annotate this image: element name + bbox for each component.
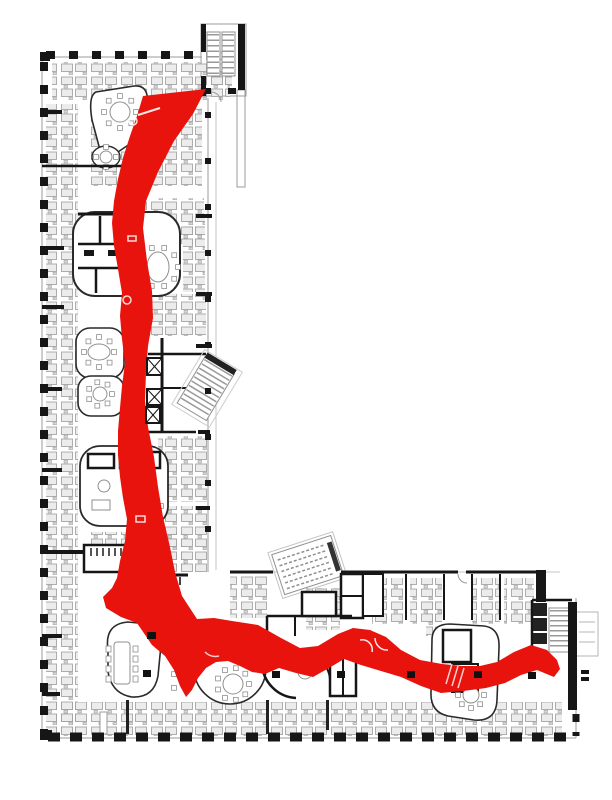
chair [482, 693, 487, 698]
chair [247, 682, 252, 687]
chair [149, 246, 154, 251]
band-wall-stub [126, 700, 129, 734]
chair [459, 702, 464, 707]
elevator-box [533, 603, 547, 616]
chair [216, 687, 221, 692]
chair [107, 339, 112, 344]
chair [107, 360, 112, 365]
chair [95, 403, 100, 408]
chair [112, 350, 117, 355]
tower-door-jamb [228, 88, 236, 94]
chair [172, 686, 177, 691]
desk-zone [150, 294, 206, 336]
chair [86, 339, 91, 344]
auditorium-body [272, 535, 344, 594]
chair [118, 126, 123, 131]
column-on-ribbon [474, 671, 482, 678]
round-table [110, 102, 130, 122]
chair [469, 706, 474, 711]
tower-wall-right [238, 24, 245, 90]
conference-table [114, 642, 130, 684]
chair [172, 253, 177, 258]
floor-plan-svg [0, 0, 612, 800]
right-appendage [576, 612, 598, 656]
elevator-box [533, 633, 547, 644]
chair [97, 365, 102, 370]
chair [233, 697, 238, 702]
chair [106, 121, 111, 126]
chair [106, 656, 111, 662]
column-on-ribbon [407, 671, 415, 678]
door-jamb-mark [581, 670, 589, 674]
corner-column [40, 730, 52, 740]
chair [86, 360, 91, 365]
chair [106, 646, 111, 652]
column-on-ribbon [528, 672, 536, 679]
chair [243, 692, 248, 697]
chair [106, 666, 111, 672]
desk-zone [183, 216, 205, 292]
band-wall-stub [266, 700, 269, 734]
chair [105, 382, 110, 387]
wall-stub [196, 214, 212, 218]
chair [176, 265, 181, 270]
wall-stub [196, 292, 212, 296]
chair [129, 98, 134, 103]
chair [102, 110, 107, 115]
door-jamb-mark [581, 677, 589, 681]
chair [87, 386, 92, 391]
tower-stair-flight [207, 32, 220, 76]
round-table [100, 151, 112, 163]
chair [106, 676, 111, 682]
small-room [302, 592, 336, 616]
chair [133, 646, 138, 652]
chair [456, 693, 461, 698]
wall-stub [198, 430, 210, 434]
chair [223, 696, 228, 701]
floorplan-image [0, 0, 612, 800]
tower-wall-left [201, 24, 206, 52]
chair [87, 397, 92, 402]
desk-zone [504, 578, 534, 624]
chair [233, 666, 238, 671]
chair [114, 155, 119, 160]
round-table [223, 674, 243, 694]
chair [82, 350, 87, 355]
chair [162, 246, 167, 251]
chair [106, 98, 111, 103]
corner-wall [536, 570, 546, 602]
chair [105, 401, 110, 406]
oval-table [88, 344, 110, 360]
tower-stair-flight [222, 32, 235, 76]
pod-cabinet [84, 250, 94, 256]
chair [133, 676, 138, 682]
column-on-ribbon [143, 670, 151, 677]
desk-zone [472, 578, 500, 624]
facade-right-solid [568, 602, 577, 710]
chair [97, 335, 102, 340]
wall-stub [196, 506, 210, 510]
door-arc [458, 574, 467, 583]
desk-zone [230, 576, 268, 618]
chair [133, 666, 138, 672]
chair [134, 110, 139, 115]
chair [162, 284, 167, 289]
column-on-ribbon [272, 671, 280, 678]
pod-room [443, 630, 471, 662]
room-block [363, 574, 383, 616]
wall-stub [42, 468, 62, 472]
canopy-strip [237, 90, 245, 187]
chair [478, 702, 483, 707]
column-on-ribbon [147, 632, 156, 639]
chair [118, 94, 123, 99]
floor-plan-layers [40, 24, 598, 740]
elevator-box [533, 618, 547, 631]
corner-column [40, 52, 50, 61]
storage-rect [100, 712, 107, 734]
oval-table [147, 252, 169, 282]
chair [216, 676, 221, 681]
chair [223, 668, 228, 673]
band-wall-stub [326, 700, 329, 730]
round-table [93, 387, 107, 401]
wall-stub [42, 305, 64, 309]
column-on-ribbon [337, 671, 345, 678]
wall-stub [42, 692, 60, 696]
chair [94, 155, 99, 160]
chair [104, 145, 109, 150]
chair [133, 656, 138, 662]
chair [110, 392, 115, 397]
chair [95, 380, 100, 385]
chair [172, 276, 177, 281]
chair [243, 671, 248, 676]
